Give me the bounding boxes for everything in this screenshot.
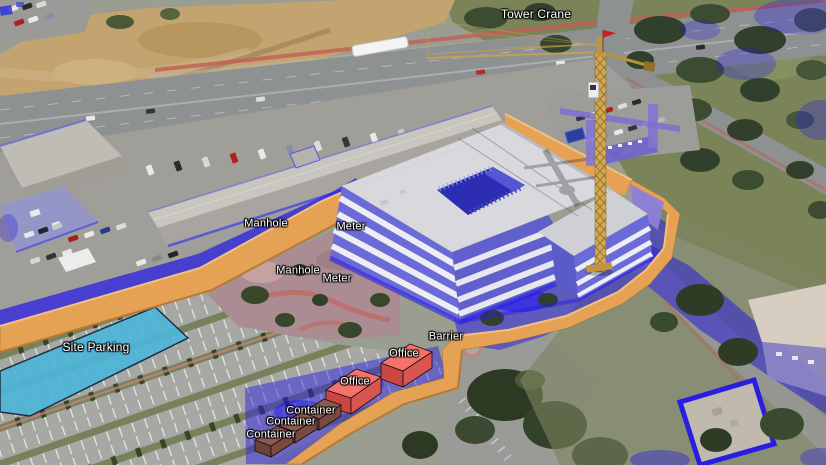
site-map-canvas: [0, 0, 826, 465]
annotation-label-container-3[interactable]: Container: [246, 430, 296, 441]
annotation-label-barrier-1[interactable]: Barrier: [429, 332, 463, 343]
annotation-label-office-1[interactable]: Office: [389, 349, 419, 360]
annotation-label-manhole-1[interactable]: Manhole: [244, 219, 288, 230]
annotation-label-tower-crane[interactable]: Tower Crane: [501, 8, 571, 20]
annotation-label-manhole-2[interactable]: Manhole: [276, 266, 320, 277]
annotation-label-meter-2[interactable]: Meter: [322, 274, 351, 285]
annotation-label-site-parking[interactable]: Site Parking: [62, 341, 129, 353]
annotation-label-meter-1[interactable]: Meter: [336, 222, 365, 233]
aerial-scene: Tower CraneManholeMeterManholeMeterBarri…: [0, 0, 826, 465]
annotation-label-office-2[interactable]: Office: [340, 377, 370, 388]
annotation-label-container-2[interactable]: Container: [266, 417, 316, 428]
